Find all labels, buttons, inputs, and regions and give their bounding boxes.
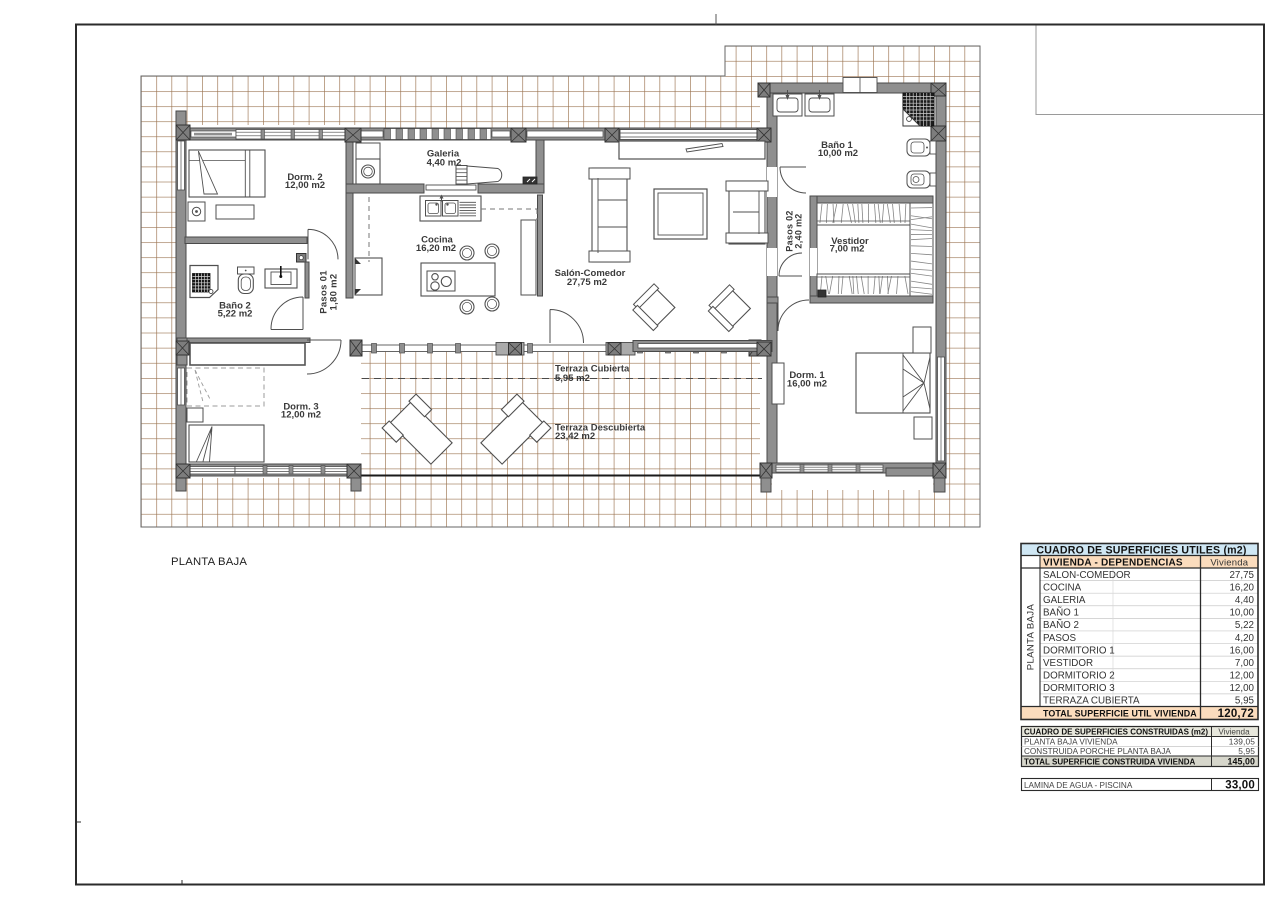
svg-text:4,40: 4,40 <box>1235 595 1255 606</box>
svg-text:DORMITORIO 1: DORMITORIO 1 <box>1043 645 1115 656</box>
svg-text:PLANTA BAJA VIVIENDA: PLANTA BAJA VIVIENDA <box>1024 737 1118 746</box>
svg-text:COCINA: COCINA <box>1043 582 1082 593</box>
svg-text:5,22: 5,22 <box>1235 620 1254 631</box>
svg-text:5,95 m2: 5,95 m2 <box>555 373 590 384</box>
svg-text:12,00: 12,00 <box>1229 671 1254 682</box>
svg-text:120,72: 120,72 <box>1218 708 1254 720</box>
svg-text:CUADRO DE SUPERFICIES UTILES (: CUADRO DE SUPERFICIES UTILES (m2) <box>1036 544 1246 556</box>
svg-text:5,95: 5,95 <box>1238 746 1255 756</box>
svg-text:DORMITORIO 2: DORMITORIO 2 <box>1043 671 1115 682</box>
svg-text:5,22 m2: 5,22 m2 <box>218 309 253 320</box>
svg-text:5,95: 5,95 <box>1235 696 1255 707</box>
svg-text:PASOS: PASOS <box>1043 633 1076 644</box>
svg-text:TOTAL SUPERFICIE CONSTRUIDA VI: TOTAL SUPERFICIE CONSTRUIDA VIVIENDA <box>1024 758 1195 767</box>
svg-text:Vivienda: Vivienda <box>1218 728 1250 737</box>
svg-text:139,05: 139,05 <box>1229 736 1255 746</box>
svg-text:2,40 m2: 2,40 m2 <box>794 213 804 248</box>
svg-text:7,00: 7,00 <box>1235 658 1255 669</box>
svg-text:PLANTA BAJA: PLANTA BAJA <box>1026 603 1037 670</box>
svg-text:VIVIENDA - DEPENDENCIAS: VIVIENDA - DEPENDENCIAS <box>1043 557 1183 568</box>
svg-text:SALON-COMEDOR: SALON-COMEDOR <box>1043 570 1131 581</box>
svg-text:16,00 m2: 16,00 m2 <box>787 379 827 390</box>
svg-text:BAÑO 2: BAÑO 2 <box>1043 620 1079 631</box>
svg-text:27,75: 27,75 <box>1229 570 1254 581</box>
svg-text:33,00: 33,00 <box>1225 780 1255 792</box>
svg-text:DORMITORIO 3: DORMITORIO 3 <box>1043 683 1115 694</box>
svg-text:12,00: 12,00 <box>1229 683 1254 694</box>
svg-text:10,00 m2: 10,00 m2 <box>818 148 858 159</box>
svg-text:LAMINA DE AGUA - PISCINA: LAMINA DE AGUA - PISCINA <box>1024 781 1133 790</box>
svg-text:BAÑO 1: BAÑO 1 <box>1043 608 1079 619</box>
svg-text:4,40 m2: 4,40 m2 <box>427 158 462 169</box>
svg-text:CUADRO DE SUPERFICIES CONSTRUI: CUADRO DE SUPERFICIES CONSTRUIDAS (m2) <box>1024 728 1208 737</box>
svg-text:12,00 m2: 12,00 m2 <box>281 410 321 421</box>
svg-text:CONSTRUIDA PORCHE PLANTA BAJA: CONSTRUIDA PORCHE PLANTA BAJA <box>1024 747 1171 756</box>
svg-text:VESTIDOR: VESTIDOR <box>1043 658 1093 669</box>
svg-text:7,00 m2: 7,00 m2 <box>830 244 865 255</box>
svg-text:TOTAL SUPERFICIE UTIL VIVIENDA: TOTAL SUPERFICIE UTIL VIVIENDA <box>1043 709 1197 719</box>
svg-text:16,00: 16,00 <box>1229 645 1254 656</box>
svg-text:145,00: 145,00 <box>1227 757 1255 767</box>
svg-text:GALERIA: GALERIA <box>1043 595 1086 606</box>
svg-text:27,75 m2: 27,75 m2 <box>567 277 607 288</box>
svg-text:16,20: 16,20 <box>1229 582 1254 593</box>
svg-text:1,80 m2: 1,80 m2 <box>329 274 340 311</box>
svg-text:23,42 m2: 23,42 m2 <box>555 431 595 442</box>
svg-text:Vivienda: Vivienda <box>1210 557 1248 568</box>
svg-text:PLANTA BAJA: PLANTA BAJA <box>171 556 247 568</box>
svg-text:12,00 m2: 12,00 m2 <box>285 180 325 191</box>
svg-text:16,20 m2: 16,20 m2 <box>416 243 456 254</box>
svg-text:10,00: 10,00 <box>1229 608 1254 619</box>
svg-text:TERRAZA CUBIERTA: TERRAZA CUBIERTA <box>1043 696 1140 707</box>
svg-text:4,20: 4,20 <box>1235 633 1255 644</box>
